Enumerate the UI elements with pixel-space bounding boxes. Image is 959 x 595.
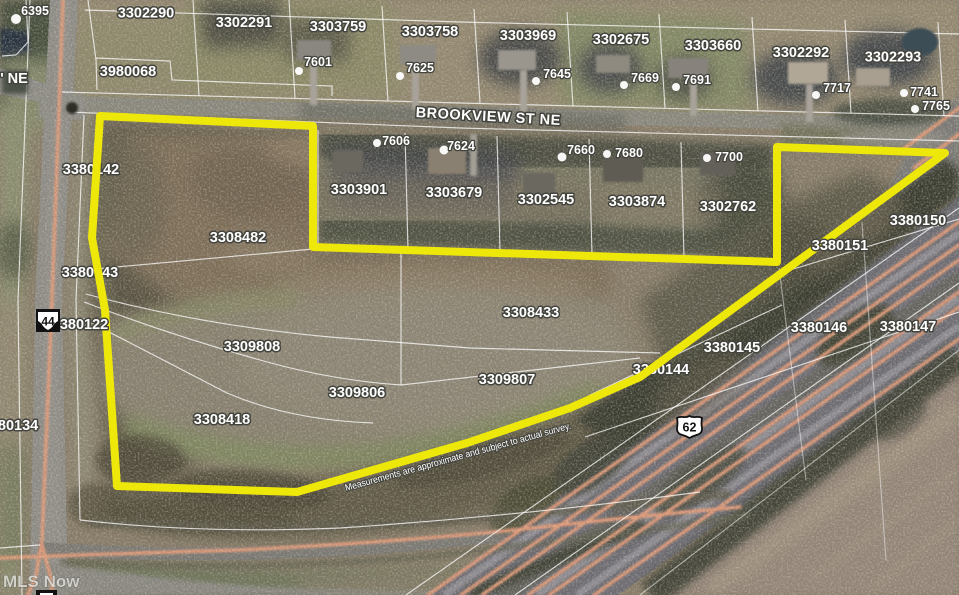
svg-text:3302292: 3302292 <box>773 45 829 61</box>
svg-text:' NE: ' NE <box>0 71 28 87</box>
svg-text:7606: 7606 <box>382 134 410 148</box>
svg-text:3380147: 3380147 <box>880 319 936 335</box>
svg-text:3308418: 3308418 <box>194 412 250 428</box>
svg-text:3302290: 3302290 <box>118 6 174 22</box>
svg-text:3309808: 3309808 <box>224 339 280 355</box>
svg-text:3380143: 3380143 <box>62 265 118 281</box>
svg-text:3380151: 3380151 <box>812 238 868 254</box>
svg-text:7660: 7660 <box>567 143 595 157</box>
svg-text:3308482: 3308482 <box>210 230 266 246</box>
svg-text:7741: 7741 <box>910 85 938 99</box>
svg-text:3302675: 3302675 <box>593 32 649 48</box>
svg-text:3303679: 3303679 <box>426 185 482 201</box>
svg-text:7700: 7700 <box>715 150 743 164</box>
svg-text:3309806: 3309806 <box>329 385 385 401</box>
svg-text:3303758: 3303758 <box>402 24 458 40</box>
svg-text:62: 62 <box>683 421 697 435</box>
svg-text:3302545: 3302545 <box>518 192 574 208</box>
svg-text:3380150: 3380150 <box>890 213 946 229</box>
svg-text:7765: 7765 <box>922 99 950 113</box>
svg-text:3380122: 3380122 <box>52 317 108 333</box>
svg-text:7624: 7624 <box>447 139 475 153</box>
svg-text:7669: 7669 <box>631 71 659 85</box>
svg-text:MLS Now: MLS Now <box>3 572 80 591</box>
svg-text:44: 44 <box>41 315 55 329</box>
svg-text:3303660: 3303660 <box>685 38 741 54</box>
svg-text:3302762: 3302762 <box>700 199 756 215</box>
svg-text:3303969: 3303969 <box>500 28 556 44</box>
svg-text:7680: 7680 <box>615 146 643 160</box>
svg-text:3980068: 3980068 <box>100 64 156 80</box>
svg-text:7601: 7601 <box>304 55 332 69</box>
svg-text:6395: 6395 <box>21 4 49 18</box>
svg-text:3380134: 3380134 <box>0 418 38 434</box>
svg-text:3302291: 3302291 <box>216 15 272 31</box>
svg-text:7645: 7645 <box>543 67 571 81</box>
svg-text:3380145: 3380145 <box>704 340 760 356</box>
svg-text:7691: 7691 <box>683 73 711 87</box>
svg-text:3380146: 3380146 <box>791 320 847 336</box>
svg-text:3303759: 3303759 <box>310 19 366 35</box>
svg-text:3302293: 3302293 <box>865 50 921 66</box>
svg-text:3380142: 3380142 <box>63 162 119 178</box>
svg-text:3303901: 3303901 <box>331 182 387 198</box>
svg-text:3303874: 3303874 <box>609 194 665 210</box>
svg-text:3309807: 3309807 <box>479 372 535 388</box>
svg-text:7717: 7717 <box>823 81 851 95</box>
svg-text:7625: 7625 <box>406 61 434 75</box>
svg-text:3308433: 3308433 <box>503 305 559 321</box>
